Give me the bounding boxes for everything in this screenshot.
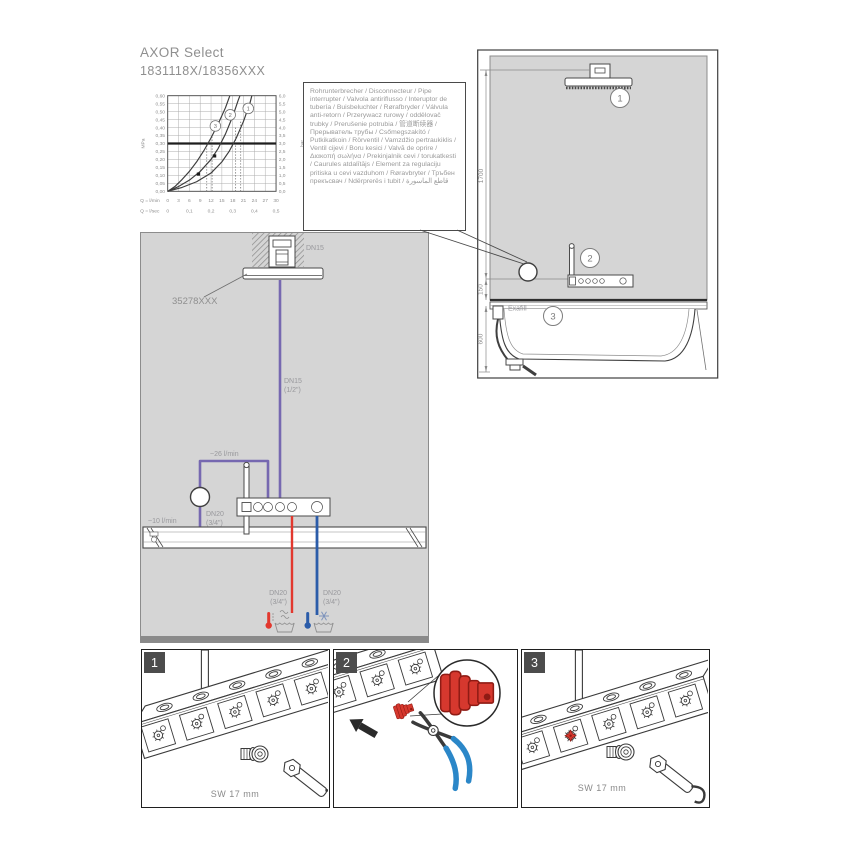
svg-text:0: 0 xyxy=(166,198,169,204)
product-code-label: 35278XXX xyxy=(172,296,218,307)
svg-text:6: 6 xyxy=(188,198,191,204)
valve-manifold xyxy=(142,650,328,758)
svg-text:15: 15 xyxy=(219,198,225,204)
svg-text:MPa: MPa xyxy=(140,138,146,148)
svg-text:12: 12 xyxy=(208,198,214,204)
dn15-pipe-label: DN15 xyxy=(284,378,302,385)
svg-text:3,0: 3,0 xyxy=(279,141,286,147)
hot-dn20-size: (3/4") xyxy=(270,599,287,606)
svg-text:3: 3 xyxy=(214,124,217,130)
cold-dn20-label: DN20 xyxy=(323,590,341,597)
page-title: AXOR Select xyxy=(140,45,224,60)
pipe-interrupter-note: Rohrunterbrecher / Disconnecteur / Pipe … xyxy=(303,82,466,231)
svg-text:3,5: 3,5 xyxy=(279,133,286,139)
exafill-label: Exafill xyxy=(508,306,527,313)
hot-dn20-label: DN20 xyxy=(269,590,287,597)
svg-text:0,20: 0,20 xyxy=(156,157,166,163)
wall xyxy=(490,56,707,300)
step-3-caption: SW 17 mm xyxy=(578,783,627,793)
socket-wrench-icon xyxy=(646,753,708,806)
plug xyxy=(607,744,634,760)
svg-text:0,45: 0,45 xyxy=(156,117,166,123)
svg-text:18: 18 xyxy=(230,198,236,204)
svg-text:0,15: 0,15 xyxy=(156,165,166,171)
svg-text:1,5: 1,5 xyxy=(279,165,286,171)
svg-text:0,3: 0,3 xyxy=(229,209,236,215)
pipe-interrupter-icon xyxy=(519,263,537,281)
svg-text:0,10: 0,10 xyxy=(156,173,166,179)
flow-26-label: ~26 l/min xyxy=(210,451,239,458)
step-3-panel: 3 SW 17 mm xyxy=(521,649,710,808)
dn15-pipe-size: (1/2") xyxy=(284,387,301,394)
svg-text:0,55: 0,55 xyxy=(156,101,166,107)
svg-text:0: 0 xyxy=(166,209,169,215)
red-plug xyxy=(393,700,416,720)
overhead-shower xyxy=(243,268,323,279)
flow-10-label: ~10 l/min xyxy=(148,518,177,525)
product-codes: 1831118X/18356XXX xyxy=(140,64,265,78)
arrow-icon xyxy=(346,713,380,741)
rim-drain-icon xyxy=(150,532,158,536)
svg-text:9: 9 xyxy=(199,198,202,204)
svg-text:0,2: 0,2 xyxy=(208,209,215,215)
svg-text:5,5: 5,5 xyxy=(279,101,286,107)
badge-2-label: 2 xyxy=(587,253,592,264)
step-1-caption: SW 17 mm xyxy=(211,789,260,799)
flow-rate-chart: 0,606,00,555,50,505,00,454,50,404,00,353… xyxy=(139,86,309,235)
dn15-ceiling-label: DN15 xyxy=(306,245,324,252)
thermostat-trim xyxy=(237,498,330,516)
svg-text:0,1: 0,1 xyxy=(186,209,193,215)
step-3-illustration: SW 17 mm xyxy=(522,650,708,806)
ceiling-connection xyxy=(252,233,304,267)
svg-text:6,0: 6,0 xyxy=(279,93,286,99)
svg-text:0,50: 0,50 xyxy=(156,109,166,115)
tub-rim xyxy=(143,527,426,548)
svg-text:0,60: 0,60 xyxy=(156,93,166,99)
wall-panel xyxy=(141,233,429,643)
svg-text:21: 21 xyxy=(241,198,247,204)
svg-text:4,5: 4,5 xyxy=(279,117,286,123)
dn20-interrupter-label: DN20 xyxy=(206,511,224,518)
dn20-interrupter-size: (3/4") xyxy=(206,520,223,527)
svg-text:5,0: 5,0 xyxy=(279,109,286,115)
dim-150-label: 150 xyxy=(478,284,485,295)
socket-wrench-icon xyxy=(280,757,328,806)
panel-bottom-edge xyxy=(141,636,429,643)
svg-text:Q = l/min: Q = l/min xyxy=(140,198,160,204)
svg-text:Q = l/sec: Q = l/sec xyxy=(140,209,160,215)
svg-text:0,40: 0,40 xyxy=(156,125,166,131)
svg-text:27: 27 xyxy=(263,198,269,204)
step-2-badge: 2 xyxy=(336,652,357,673)
step-1-illustration: SW 17 mm xyxy=(142,650,328,806)
pipe-interrupter-icon xyxy=(191,488,210,507)
svg-text:4,0: 4,0 xyxy=(279,125,286,131)
svg-text:0,4: 0,4 xyxy=(251,209,258,215)
svg-text:3: 3 xyxy=(177,198,180,204)
svg-text:0,25: 0,25 xyxy=(156,149,166,155)
step-2-illustration xyxy=(334,650,516,806)
thermostat-trim xyxy=(568,275,633,287)
svg-text:0,05: 0,05 xyxy=(156,181,166,187)
step-1-panel: 1 SW 17 mm xyxy=(141,649,330,808)
svg-text:0,5: 0,5 xyxy=(273,209,280,215)
svg-text:1,0: 1,0 xyxy=(279,173,286,179)
svg-text:0,0: 0,0 xyxy=(279,189,286,195)
step-1-badge: 1 xyxy=(144,652,165,673)
svg-text:0,35: 0,35 xyxy=(156,133,166,139)
cold-dn20-size: (3/4") xyxy=(323,599,340,606)
piping-diagram: DN15 35278XXX DN15 (1/2") ~26 l/min DN20… xyxy=(140,232,430,644)
svg-text:0,30: 0,30 xyxy=(156,141,166,147)
step-2-panel: 2 xyxy=(333,649,518,808)
svg-text:2,5: 2,5 xyxy=(279,149,286,155)
svg-text:2: 2 xyxy=(229,113,232,119)
svg-text:1: 1 xyxy=(247,106,250,112)
svg-text:2,0: 2,0 xyxy=(279,157,286,163)
installation-overview-diagram: 1 1700 2 150 xyxy=(477,48,719,382)
svg-text:0,5: 0,5 xyxy=(279,181,286,187)
manual-page: AXOR Select 1831118X/18356XXX 0,606,00,5… xyxy=(0,0,850,850)
badge-3-label: 3 xyxy=(550,311,555,322)
svg-text:0,00: 0,00 xyxy=(156,189,166,195)
badge-1-label: 1 xyxy=(617,93,622,104)
svg-text:24: 24 xyxy=(252,198,258,204)
svg-text:30: 30 xyxy=(273,198,279,204)
dim-1700-label: 1700 xyxy=(478,168,485,183)
step-3-badge: 3 xyxy=(524,652,545,673)
plug xyxy=(241,746,268,762)
dim-600-label: 600 xyxy=(478,333,485,344)
